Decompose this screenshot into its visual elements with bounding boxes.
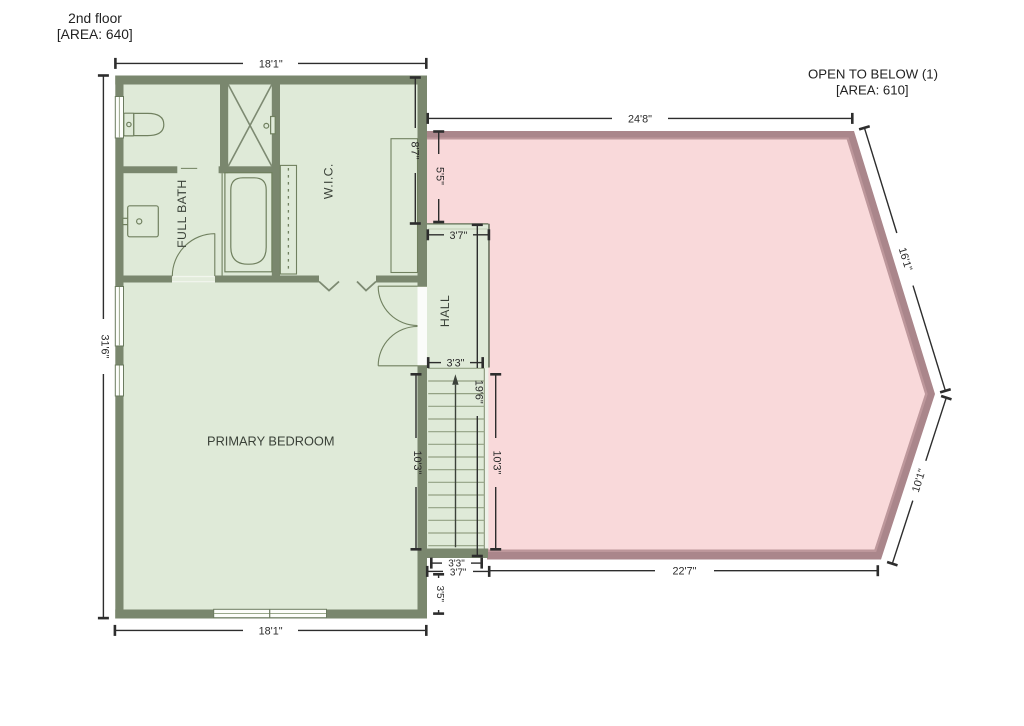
svg-text:24'8": 24'8"	[628, 113, 652, 125]
svg-text:[AREA: 640]: [AREA: 640]	[57, 27, 133, 42]
svg-text:FULL BATH: FULL BATH	[175, 179, 189, 248]
svg-text:3'7": 3'7"	[450, 568, 467, 579]
svg-text:[AREA: 610]: [AREA: 610]	[836, 83, 909, 98]
svg-text:PRIMARY BEDROOM: PRIMARY BEDROOM	[207, 434, 335, 449]
svg-text:5'5": 5'5"	[434, 167, 446, 185]
svg-text:OPEN TO BELOW (1): OPEN TO BELOW (1)	[808, 67, 938, 82]
svg-text:W.I.C.: W.I.C.	[322, 163, 336, 199]
svg-text:18'1": 18'1"	[259, 58, 283, 70]
svg-text:31'6": 31'6"	[98, 334, 110, 358]
svg-text:3'7": 3'7"	[449, 230, 467, 242]
svg-text:10'3": 10'3"	[491, 450, 503, 474]
svg-text:19'6": 19'6"	[472, 380, 484, 404]
svg-text:HALL: HALL	[438, 295, 452, 327]
svg-text:10'3": 10'3"	[411, 450, 423, 474]
svg-text:3'3": 3'3"	[447, 358, 465, 370]
svg-text:18'1": 18'1"	[259, 625, 283, 637]
svg-text:22'7": 22'7"	[673, 566, 697, 578]
svg-text:3'5": 3'5"	[434, 586, 445, 603]
svg-text:8'7": 8'7"	[409, 141, 421, 159]
svg-text:2nd floor: 2nd floor	[68, 11, 122, 26]
